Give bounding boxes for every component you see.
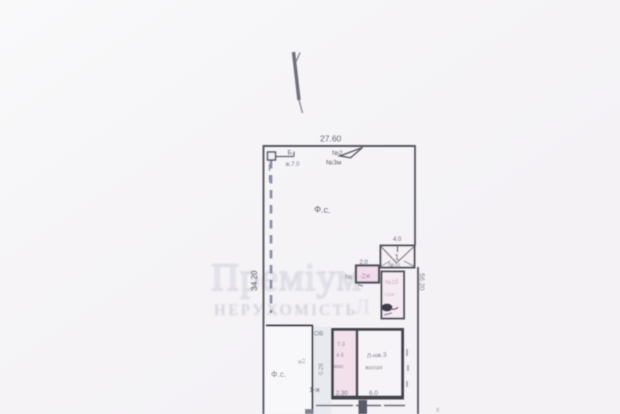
svg-text:ОВ: ОВ [314, 331, 323, 338]
svg-text:Ф.с.: Ф.с. [314, 204, 331, 215]
svg-text:маc: маc [334, 364, 344, 370]
svg-text:Преміум: Преміум [211, 256, 362, 299]
svg-text:№Зм: №Зм [326, 160, 342, 167]
svg-text:56.20: 56.20 [418, 273, 425, 291]
svg-text:№: № [345, 274, 353, 281]
svg-text:саж: саж [385, 292, 395, 298]
svg-text:Л: Л [355, 294, 370, 319]
svg-text:2.30: 2.30 [336, 391, 348, 397]
svg-text:Л-нж.3: Л-нж.3 [367, 352, 388, 360]
svg-text:№1б: №1б [385, 279, 399, 286]
svg-text:4 б: 4 б [336, 353, 344, 359]
svg-text:1-ж: 1-ж [309, 387, 320, 394]
svg-text:НЕРУХОМІСТЬ: НЕРУХОМІСТЬ [214, 302, 357, 319]
svg-text:ж.7.0: ж.7.0 [286, 162, 301, 168]
svg-text:6.0: 6.0 [369, 390, 378, 397]
svg-text:0.28: 0.28 [319, 363, 325, 375]
svg-text:к: к [436, 405, 440, 414]
svg-text:1: 1 [395, 252, 400, 262]
svg-text:2.0: 2.0 [360, 260, 369, 266]
svg-text:4.0: 4.0 [393, 237, 402, 243]
svg-text:Б.: Б. [288, 150, 294, 157]
svg-text:Ф.с.: Ф.с. [271, 369, 286, 379]
svg-text:№2: №2 [332, 150, 343, 157]
svg-text:ж2: ж2 [297, 358, 306, 366]
svg-text:7-3: 7-3 [337, 342, 345, 348]
svg-text:жилая: жилая [365, 366, 382, 372]
svg-text:27.60: 27.60 [320, 134, 342, 144]
svg-text:-2ж: -2ж [359, 273, 371, 281]
svg-text:З4.20: З4.20 [250, 270, 259, 291]
